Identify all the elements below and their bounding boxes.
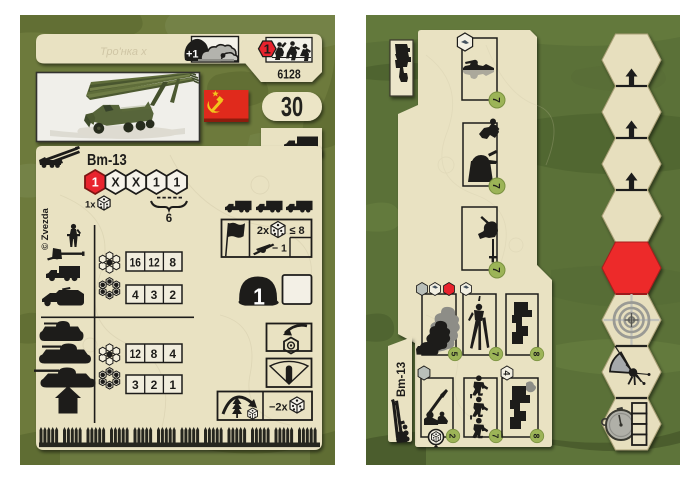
svg-text:7: 7: [490, 97, 501, 103]
svg-text:12: 12: [130, 348, 141, 361]
svg-text:7: 7: [490, 183, 501, 189]
svg-text:3: 3: [132, 378, 139, 392]
svg-text:3: 3: [151, 288, 158, 302]
svg-text:© Zvezda: © Zvezda: [40, 207, 51, 250]
svg-text:1: 1: [253, 284, 265, 310]
svg-text:1: 1: [92, 176, 99, 190]
svg-text:4: 4: [169, 347, 176, 361]
svg-text:Bm-13: Bm-13: [87, 152, 127, 169]
svg-text:X: X: [111, 176, 120, 190]
svg-text:+1: +1: [186, 49, 199, 61]
svg-text:7: 7: [490, 352, 500, 357]
svg-text:30: 30: [281, 92, 303, 123]
svg-text:−2x: −2x: [269, 402, 289, 414]
svg-text:1x: 1x: [85, 200, 96, 211]
svg-text:5: 5: [449, 352, 459, 357]
svg-text:8: 8: [531, 434, 541, 439]
svg-text:8: 8: [531, 352, 541, 357]
svg-text:Тро'нка х: Тро'нка х: [100, 46, 147, 58]
svg-text:12: 12: [148, 257, 159, 270]
svg-text:1: 1: [264, 42, 271, 57]
svg-text:X: X: [132, 176, 141, 190]
svg-text:− 1: − 1: [272, 243, 287, 255]
svg-text:1: 1: [153, 176, 160, 190]
svg-text:6128: 6128: [277, 69, 301, 82]
svg-text:16: 16: [130, 257, 141, 270]
svg-text:2x: 2x: [257, 225, 270, 237]
svg-text:4: 4: [132, 288, 139, 302]
svg-text:1: 1: [169, 378, 176, 392]
svg-text:2: 2: [169, 288, 176, 302]
svg-text:7: 7: [490, 267, 501, 273]
svg-text:4: 4: [502, 370, 512, 375]
svg-text:8: 8: [169, 256, 176, 270]
svg-text:≤ 8: ≤ 8: [289, 225, 304, 237]
svg-text:2: 2: [151, 378, 158, 392]
svg-text:6: 6: [166, 213, 172, 225]
svg-text:Bm-13: Bm-13: [396, 362, 408, 397]
svg-text:2: 2: [447, 434, 457, 439]
svg-text:7: 7: [490, 434, 500, 439]
svg-text:1: 1: [173, 176, 180, 190]
svg-text:8: 8: [151, 347, 158, 361]
